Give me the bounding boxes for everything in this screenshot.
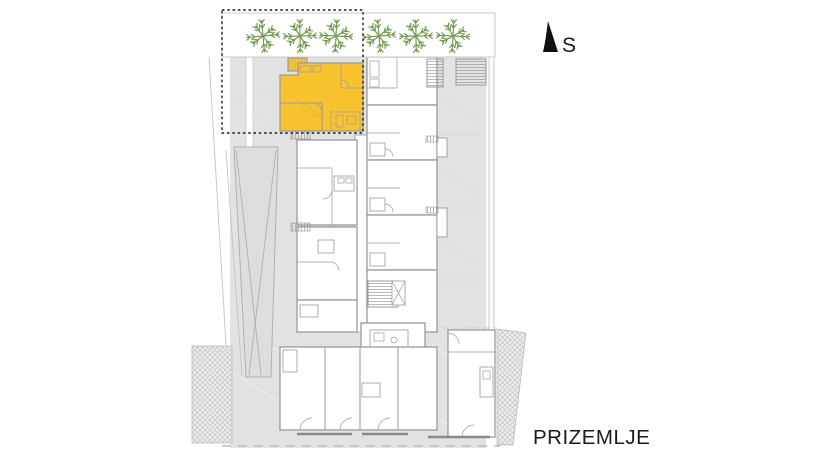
building-middle-column: [297, 140, 357, 332]
balcony-hatch: [291, 223, 310, 231]
stairs-icon: [456, 59, 486, 85]
hatched-area-bottom-right: [497, 329, 526, 445]
vent-hatch: [426, 136, 438, 142]
stairs-icon: [427, 59, 443, 87]
north-arrow: S: [543, 21, 576, 57]
balcony-hatch: [291, 131, 310, 139]
floor-label: PRIZEMLJE: [533, 426, 650, 449]
north-label: S: [562, 34, 576, 57]
hatched-area-bottom-left: [192, 346, 232, 443]
site-plan-page: S PRIZEMLJE: [0, 0, 830, 460]
north-arrow-icon: [543, 21, 558, 52]
tree-strip: [222, 13, 495, 57]
vent-hatch: [426, 207, 438, 213]
highlighted-unit[interactable]: [280, 58, 363, 131]
balcony: [437, 208, 447, 237]
balcony: [437, 138, 447, 157]
floor-plan-drawing: S PRIZEMLJE: [0, 0, 830, 460]
